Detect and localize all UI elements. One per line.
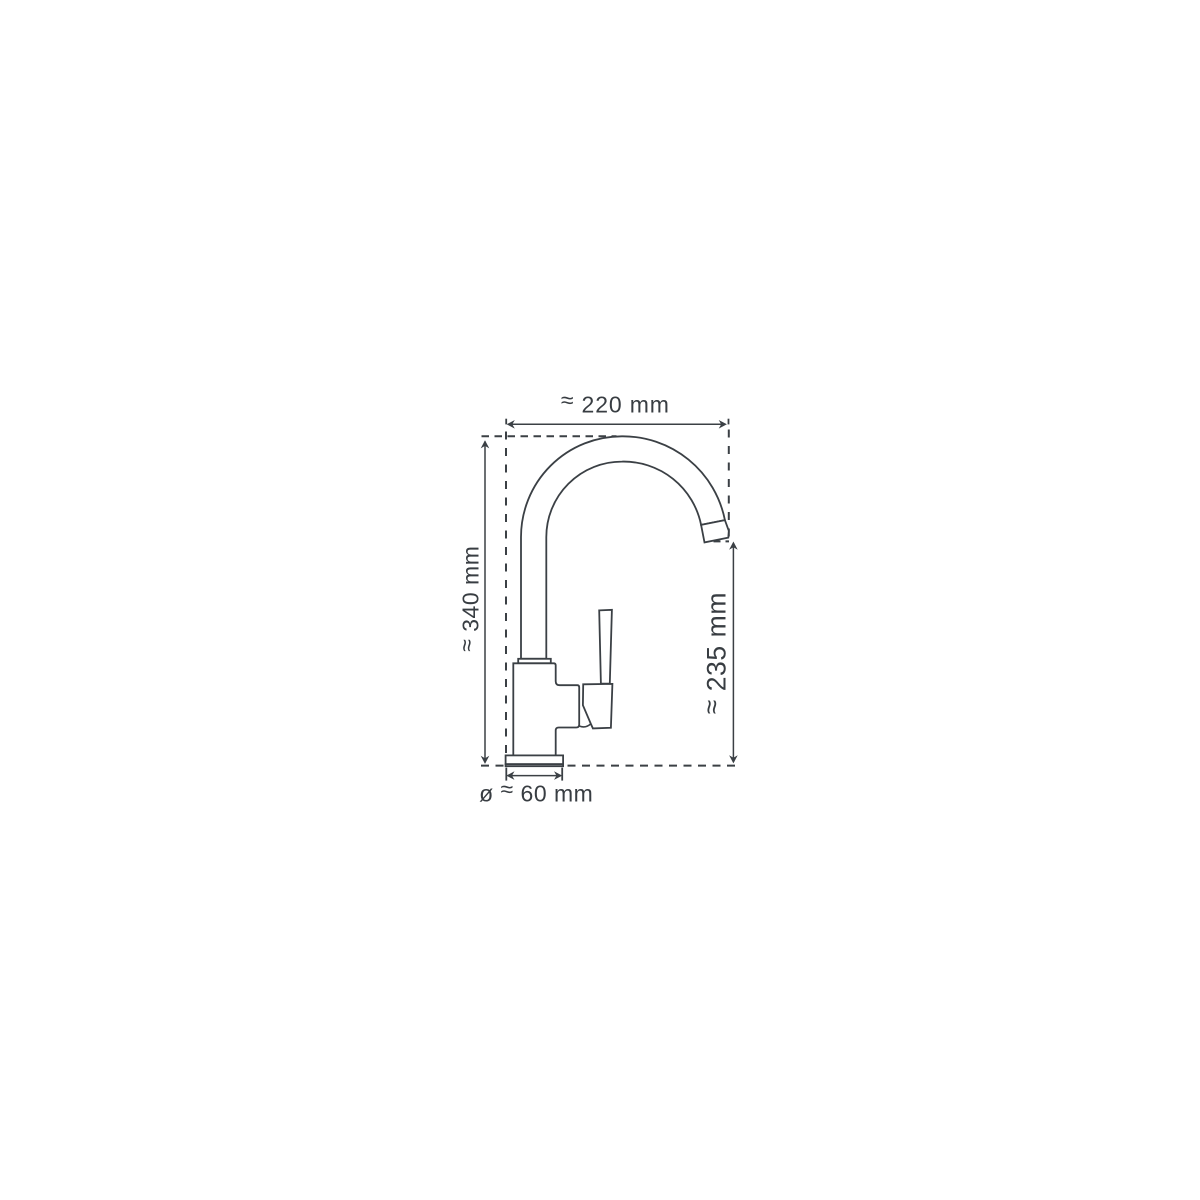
svg-text:≈ 235 mm: ≈ 235 mm	[697, 592, 732, 714]
svg-text:≈ 340 mm: ≈ 340 mm	[453, 546, 483, 652]
svg-text:≈ 220 mm: ≈ 220 mm	[561, 387, 670, 417]
svg-text:ø ≈ 60 mm: ø ≈ 60 mm	[479, 776, 593, 806]
